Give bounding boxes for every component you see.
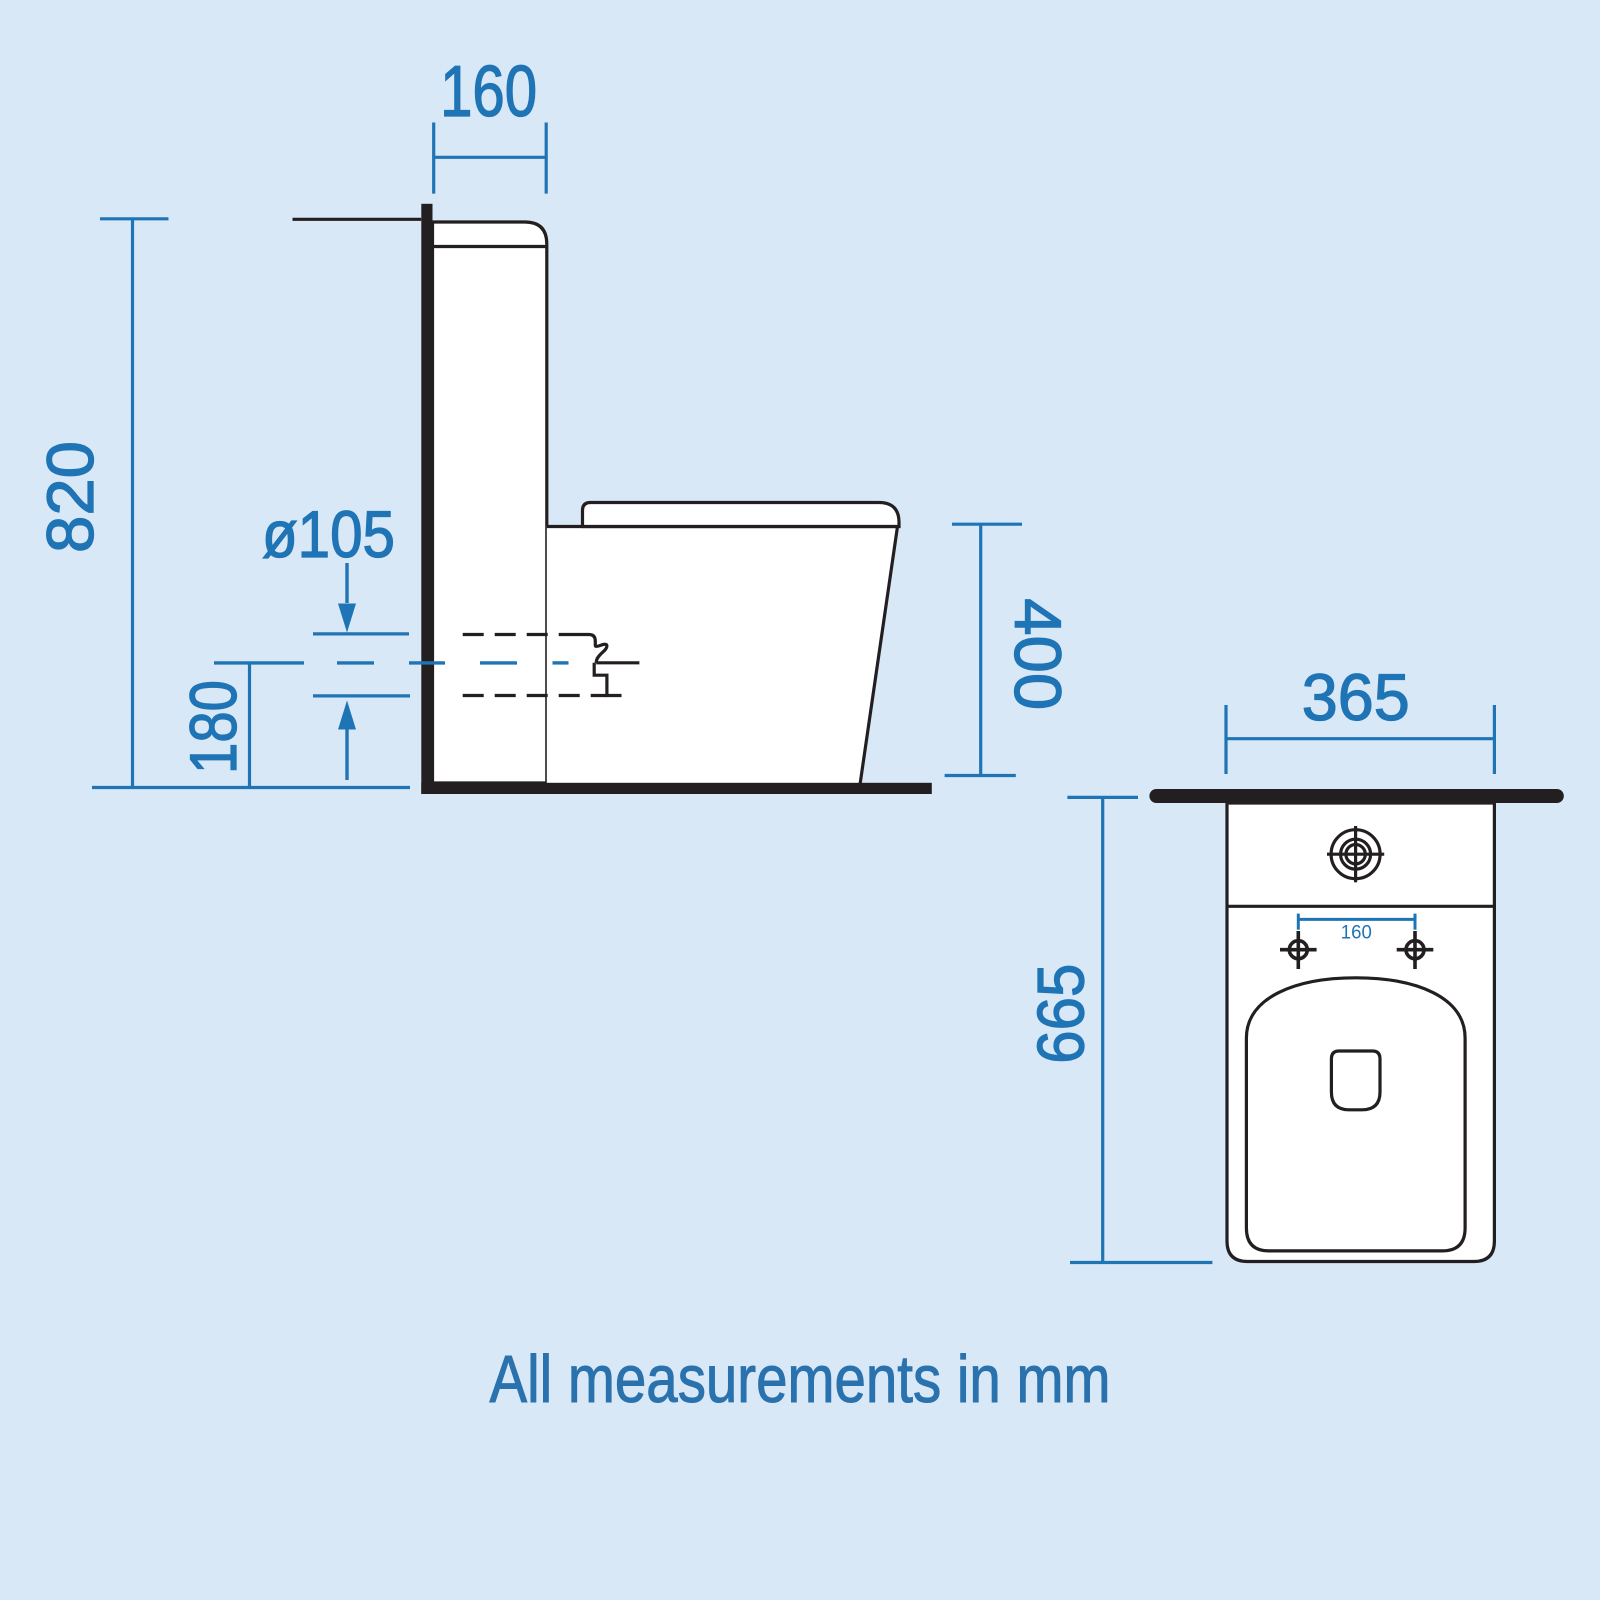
svg-text:400: 400	[1001, 598, 1075, 710]
svg-text:All measurements in mm: All measurements in mm	[490, 1342, 1111, 1417]
svg-text:365: 365	[1302, 660, 1410, 734]
svg-text:665: 665	[1023, 964, 1097, 1064]
svg-text:160: 160	[1341, 923, 1372, 944]
svg-text:180: 180	[176, 680, 250, 774]
svg-text:820: 820	[33, 441, 107, 553]
svg-text:ø105: ø105	[262, 497, 395, 571]
svg-text:160: 160	[440, 52, 537, 132]
